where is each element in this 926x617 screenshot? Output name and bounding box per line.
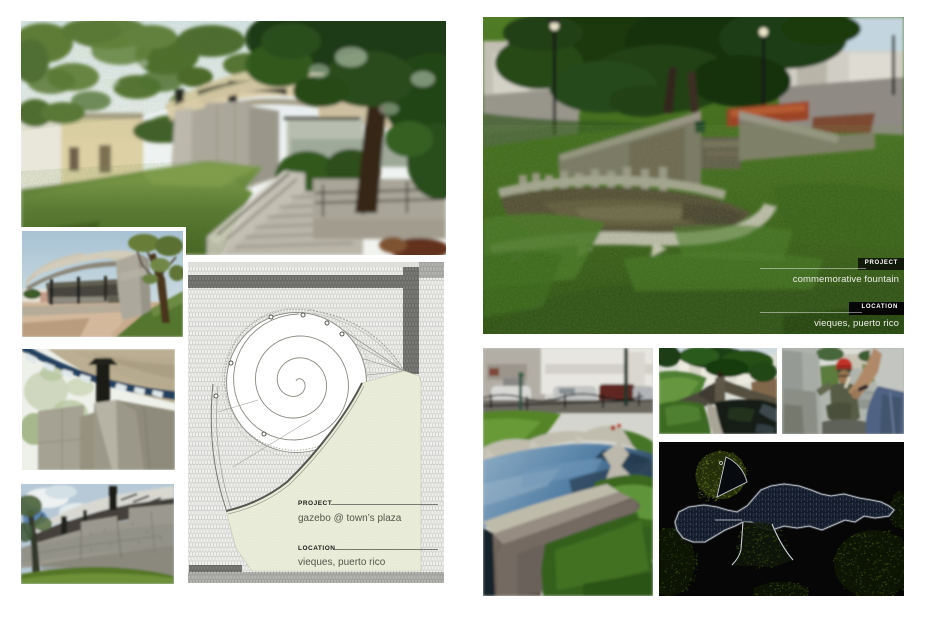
- svg-text:gazebo @ town’s plaza: gazebo @ town’s plaza: [298, 513, 402, 524]
- svg-text:PROJECT: PROJECT: [298, 500, 332, 507]
- svg-text:LOCATION: LOCATION: [298, 545, 335, 552]
- svg-text:vieques, puerto rico: vieques, puerto rico: [298, 557, 386, 568]
